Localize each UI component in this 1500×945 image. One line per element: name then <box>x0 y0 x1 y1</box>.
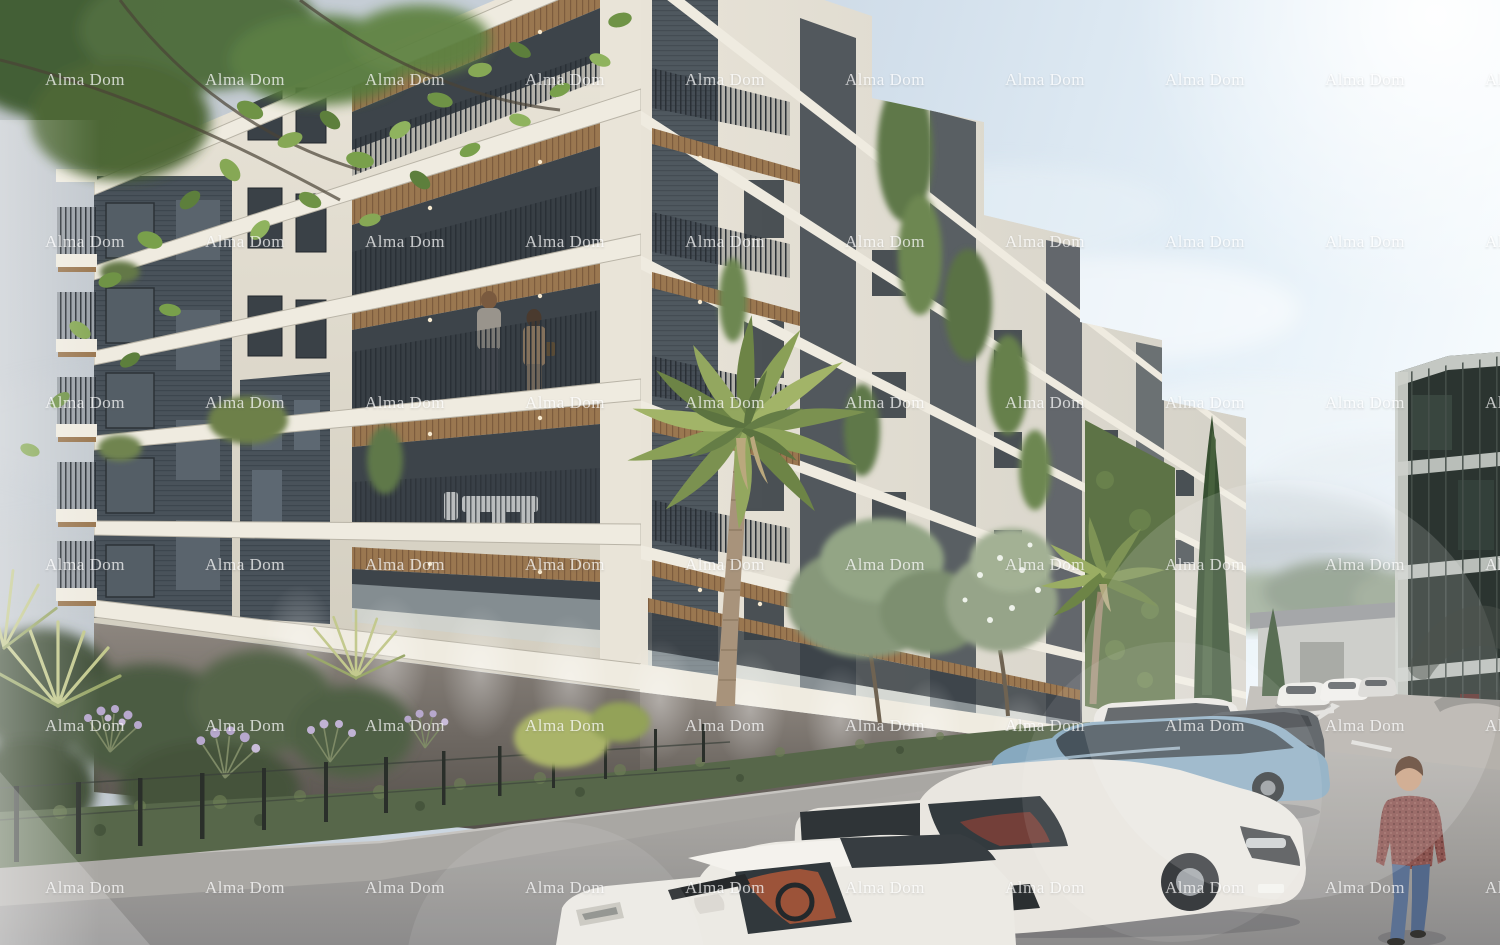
ghost-logo-circle <box>1022 642 1322 942</box>
bright-bush <box>590 702 650 742</box>
left-edge-haze <box>0 120 100 945</box>
person-man-head <box>481 291 497 309</box>
rendered-photo: Alma DomAlma DomAlma DomAlma DomAlma Dom… <box>0 0 1500 945</box>
pedestrian-shoe <box>1410 930 1426 938</box>
scene-canvas <box>0 0 1500 945</box>
